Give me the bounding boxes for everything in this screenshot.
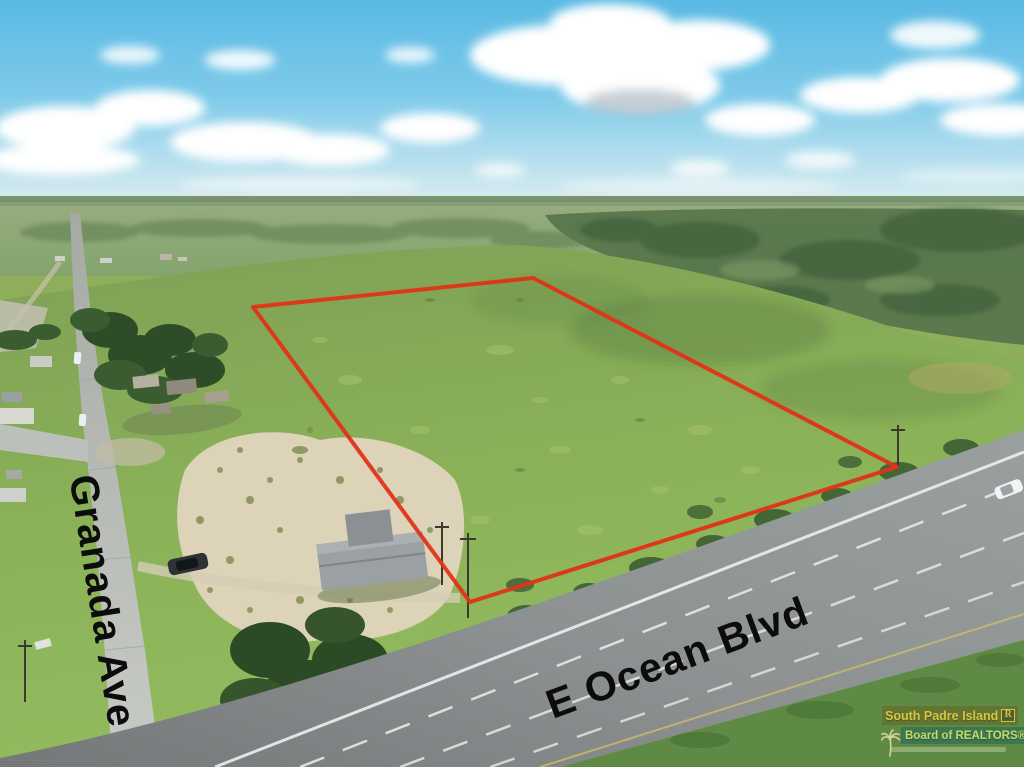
landscape-graphic <box>0 0 1024 767</box>
palm-tree-icon <box>881 728 901 758</box>
watermark-title-band: South Padre Island R <box>882 706 1018 725</box>
horizon-treeline <box>0 196 1024 206</box>
realtor-watermark: South Padre Island R Board of REALTORS® <box>880 706 1016 760</box>
realtor-r-logo-icon: R <box>1001 709 1015 722</box>
watermark-board-name: Board of REALTORS® <box>905 730 1024 742</box>
watermark-board-band: Board of REALTORS® <box>901 727 1024 744</box>
aerial-photo: Granada Ave E Ocean Blvd South Padre Isl… <box>0 0 1024 767</box>
watermark-tagline-illegible <box>890 747 1006 752</box>
dirt-apron <box>95 438 165 466</box>
dry-grass-patch <box>908 362 1012 394</box>
watermark-org-name: South Padre Island <box>885 709 998 723</box>
